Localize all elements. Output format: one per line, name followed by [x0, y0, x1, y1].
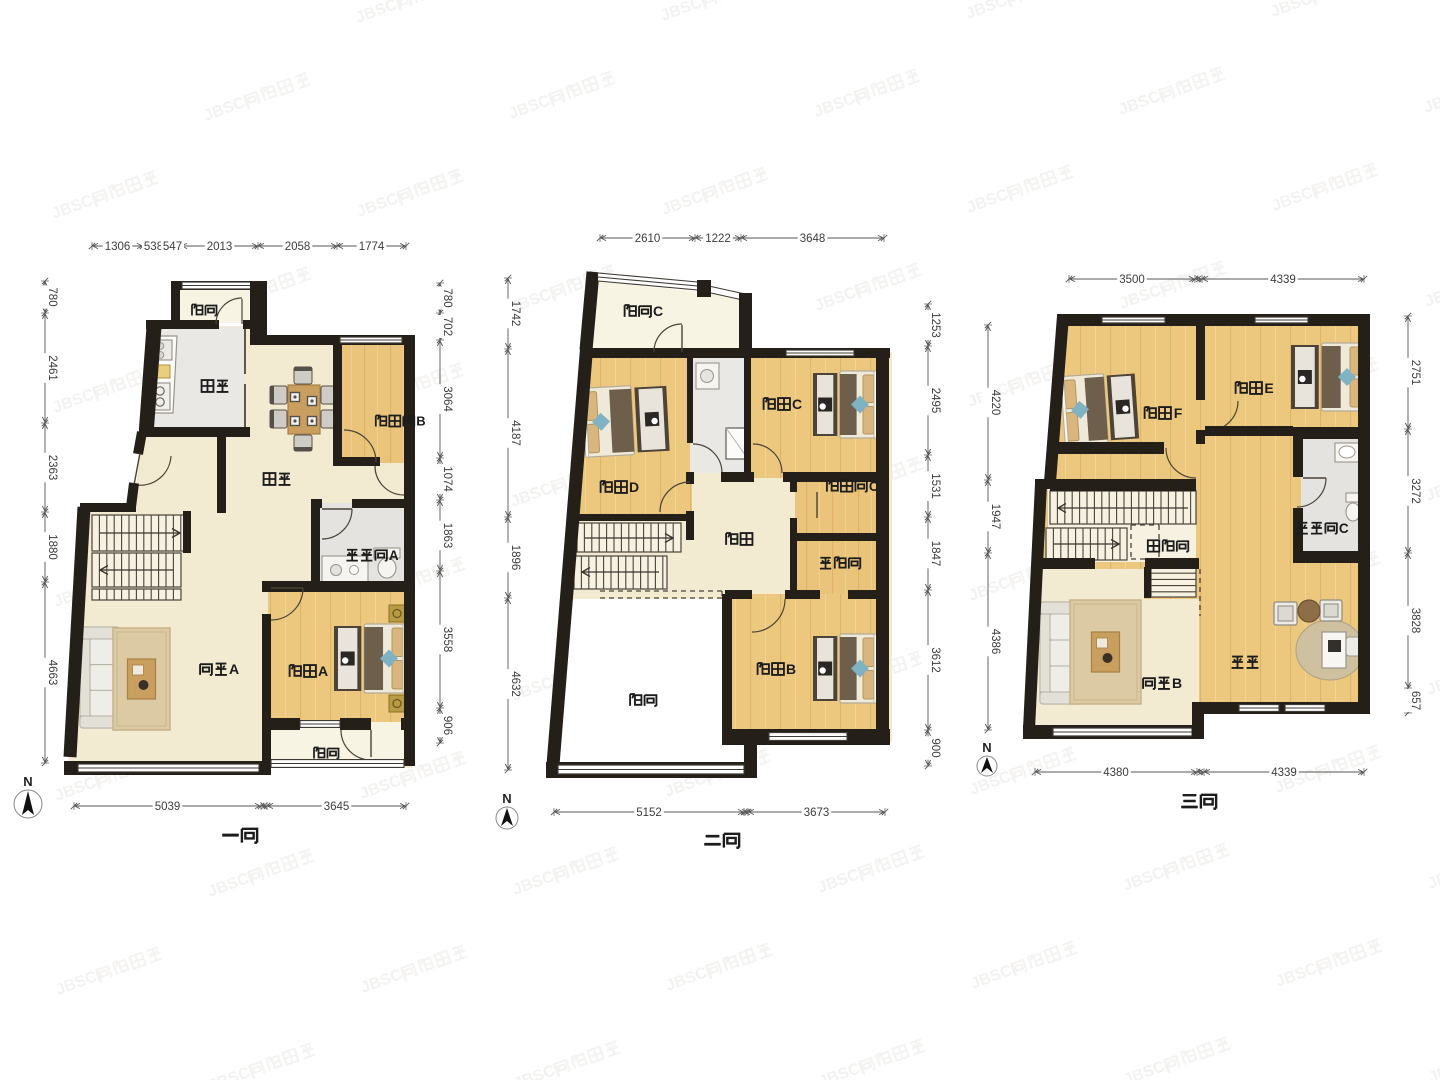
- svg-text:780: 780: [46, 287, 58, 306]
- svg-text:1253: 1253: [929, 312, 941, 338]
- svg-text:B: B: [416, 414, 425, 429]
- svg-text:547: 547: [163, 241, 182, 253]
- svg-text:1947: 1947: [989, 504, 1001, 530]
- svg-text:2751: 2751: [1409, 360, 1421, 386]
- svg-text:1531: 1531: [929, 473, 941, 499]
- svg-text:1742: 1742: [509, 301, 521, 327]
- svg-text:C: C: [792, 396, 802, 412]
- svg-text:2610: 2610: [635, 233, 661, 245]
- svg-text:N: N: [502, 791, 511, 806]
- svg-text:4663: 4663: [46, 660, 58, 686]
- svg-text:5039: 5039: [155, 801, 181, 813]
- svg-text:3648: 3648: [800, 233, 826, 245]
- svg-text:1074: 1074: [441, 466, 453, 492]
- svg-text:1306: 1306: [105, 241, 131, 253]
- svg-text:3645: 3645: [324, 801, 350, 813]
- svg-text:4632: 4632: [509, 671, 521, 697]
- svg-text:3558: 3558: [441, 627, 453, 653]
- svg-text:538: 538: [144, 241, 163, 253]
- svg-text:A: A: [229, 661, 239, 677]
- svg-text:2013: 2013: [207, 241, 233, 253]
- svg-text:3828: 3828: [1409, 608, 1421, 634]
- svg-text:C: C: [1339, 521, 1349, 536]
- svg-text:1880: 1880: [46, 534, 58, 560]
- svg-text:900: 900: [929, 738, 941, 757]
- svg-text:D: D: [629, 479, 639, 495]
- svg-text:B: B: [786, 661, 796, 677]
- svg-text:A: A: [389, 548, 399, 563]
- svg-text:702: 702: [441, 317, 453, 336]
- svg-text:N: N: [23, 774, 32, 789]
- svg-text:C: C: [869, 479, 879, 494]
- svg-text:4339: 4339: [1270, 274, 1296, 286]
- svg-text:3500: 3500: [1119, 274, 1145, 286]
- svg-text:657: 657: [1409, 691, 1421, 710]
- svg-text:3612: 3612: [929, 647, 941, 673]
- svg-text:4386: 4386: [989, 629, 1001, 655]
- svg-text:F: F: [1174, 405, 1183, 421]
- svg-text:4380: 4380: [1103, 767, 1129, 779]
- svg-text:1847: 1847: [929, 541, 941, 567]
- svg-text:B: B: [1172, 675, 1182, 691]
- svg-text:2058: 2058: [285, 241, 311, 253]
- svg-text:4339: 4339: [1271, 767, 1297, 779]
- svg-text:1774: 1774: [359, 241, 385, 253]
- svg-text:906: 906: [441, 716, 453, 735]
- svg-text:2363: 2363: [46, 455, 58, 481]
- svg-text:A: A: [318, 663, 328, 679]
- svg-text:4187: 4187: [509, 420, 521, 446]
- svg-text:2495: 2495: [929, 388, 941, 414]
- svg-text:2461: 2461: [46, 355, 58, 381]
- svg-text:3673: 3673: [804, 807, 830, 819]
- svg-text:1896: 1896: [509, 545, 521, 571]
- svg-text:E: E: [1264, 380, 1273, 396]
- svg-text:3272: 3272: [1409, 478, 1421, 504]
- svg-text:3064: 3064: [441, 386, 453, 412]
- svg-text:780: 780: [441, 288, 453, 307]
- svg-text:5152: 5152: [636, 807, 662, 819]
- svg-text:4220: 4220: [989, 390, 1001, 416]
- svg-text:1863: 1863: [441, 523, 453, 549]
- svg-text:N: N: [982, 740, 991, 755]
- svg-text:C: C: [653, 303, 663, 319]
- svg-text:1222: 1222: [705, 233, 731, 245]
